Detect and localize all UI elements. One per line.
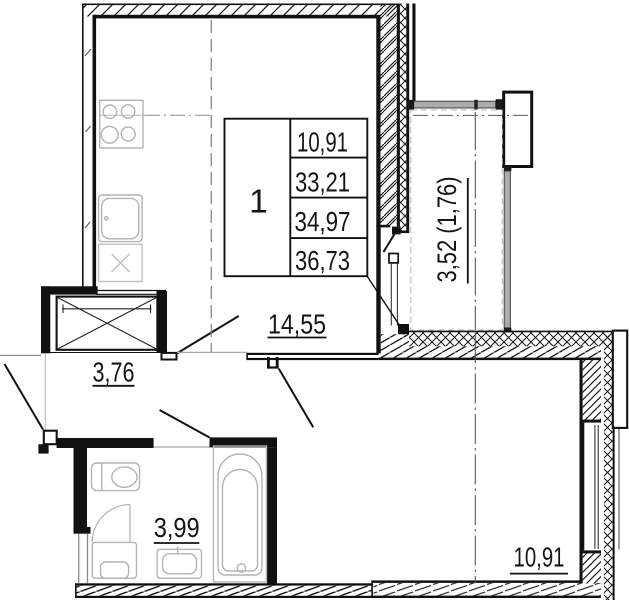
svg-text:14,55: 14,55 [268, 308, 326, 339]
svg-text:10,91: 10,91 [514, 541, 565, 572]
svg-text:34,97: 34,97 [295, 206, 351, 237]
svg-text:3,99: 3,99 [154, 512, 200, 543]
svg-text:36,73: 36,73 [295, 245, 350, 276]
svg-text:33,21: 33,21 [295, 166, 350, 197]
svg-text:10,91: 10,91 [297, 127, 348, 158]
svg-text:3,52 (1,76): 3,52 (1,76) [432, 177, 462, 283]
svg-text:1: 1 [249, 183, 268, 220]
svg-text:3,76: 3,76 [93, 356, 135, 387]
